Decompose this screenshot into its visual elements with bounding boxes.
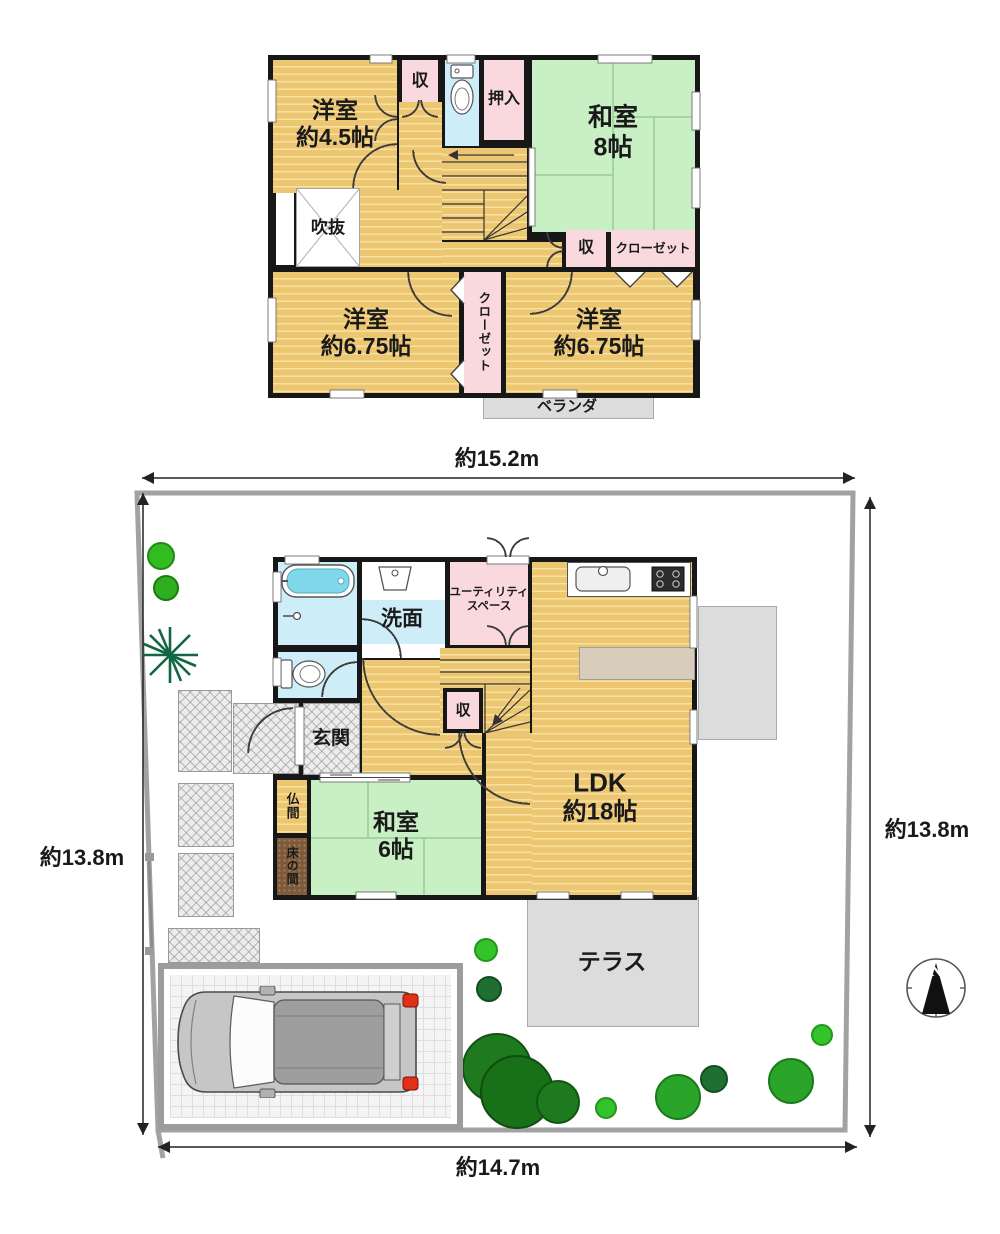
gate-post (145, 947, 154, 955)
room-ldk-lower (486, 733, 532, 895)
room-label: 洋室 約6.75帖 (554, 306, 645, 360)
shower-faucet-icon (281, 605, 303, 627)
tree-icon (477, 977, 501, 1001)
bathtub-icon (281, 564, 355, 598)
tree-icon (537, 1081, 579, 1123)
toilet-icon (449, 64, 475, 118)
side-deck (698, 606, 777, 740)
floorplan-canvas: N 洋室 約4.5帖 収 押入 和室 8帖 吹抜 収 クローゼット クローゼット… (0, 0, 1000, 1234)
tree-icon (475, 939, 497, 961)
room-label: 洋室 約4.5帖 (296, 97, 374, 151)
toilet-icon (280, 654, 328, 694)
room-label: ユーティリティ スペース (449, 586, 528, 613)
car-icon (176, 986, 428, 1098)
gate-post (145, 853, 154, 861)
north-arrow-icon: N (903, 951, 969, 1021)
tree-icon (701, 1066, 727, 1092)
hall-2f (399, 102, 442, 193)
dimension-label-right: 約13.8m (885, 817, 969, 843)
kitchen-counter (567, 562, 691, 597)
dimension-label-bottom: 約14.7m (456, 1155, 540, 1181)
room-ldk (532, 562, 692, 895)
tree-icon (812, 1025, 832, 1045)
approach-pad (168, 928, 260, 963)
approach-pad (178, 690, 232, 772)
tree-icon (596, 1098, 616, 1118)
tree-icon (148, 543, 174, 569)
lot-boundary-tail (158, 1130, 163, 1158)
stove-icon (652, 567, 684, 591)
room-label: ベランダ (537, 398, 597, 416)
stairs-2f (442, 148, 527, 240)
tree-icon (154, 576, 178, 600)
room-label: LDK 約18帖 (563, 768, 638, 827)
room-label: テラス (578, 948, 647, 975)
room-label: 和室 8帖 (588, 104, 638, 163)
entrance-porch (233, 703, 299, 774)
corridor-2f (442, 242, 562, 267)
approach-pad (178, 783, 234, 847)
stairs-icon (442, 148, 527, 240)
approach-pad (178, 853, 234, 917)
palm-tree-icon (142, 627, 198, 683)
dimension-label-top: 約15.2m (455, 446, 539, 472)
taillight (403, 994, 418, 1007)
room-label: 収 (578, 240, 594, 259)
room-label: 収 (455, 702, 470, 720)
tree-icon (769, 1059, 813, 1103)
room-label: 和室 6帖 (373, 809, 419, 863)
kitchen-fixtures (568, 563, 689, 595)
tree-icon (656, 1075, 700, 1119)
north-label: N (930, 963, 942, 980)
taillight (403, 1077, 418, 1090)
room-label: クローゼット (476, 292, 491, 373)
kitchen-island (579, 647, 695, 680)
hall-2f-lower (360, 190, 442, 267)
room-label: 押入 (488, 91, 520, 110)
room-label: 玄関 (312, 728, 350, 750)
room-label: 仏間 (284, 792, 299, 820)
room-label: 洋室 約6.75帖 (321, 306, 412, 360)
room-label: 収 (412, 71, 429, 91)
room-label: クローゼット (615, 242, 690, 257)
dimension-label-left: 約13.8m (40, 845, 124, 871)
room-label: 洗面 (381, 608, 423, 633)
sink-icon (372, 564, 418, 594)
room-label: 吹抜 (311, 218, 345, 238)
room-label: 床の間 (285, 847, 299, 886)
void-side (276, 193, 294, 265)
